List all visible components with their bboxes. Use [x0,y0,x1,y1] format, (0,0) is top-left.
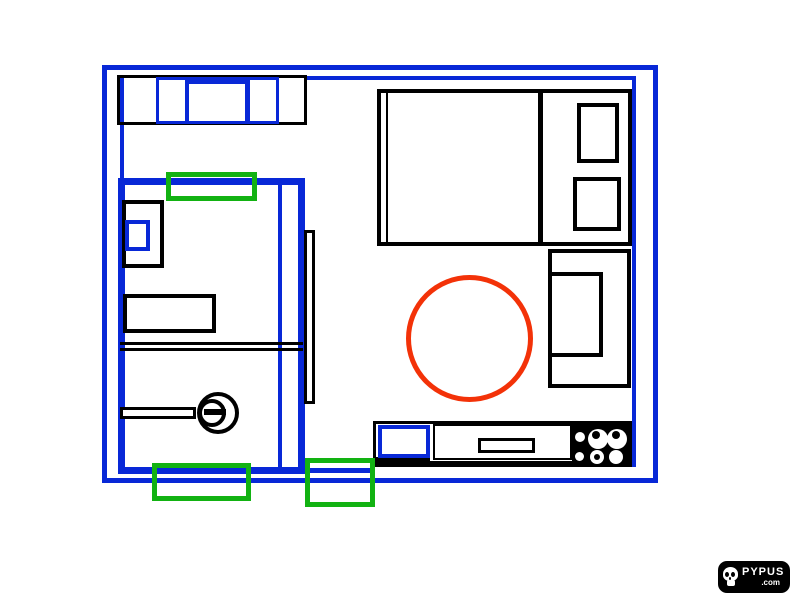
towel-bar[interactable] [120,407,196,419]
door-leaf[interactable] [304,230,315,404]
logo-brand-text: PYPUS [742,567,786,578]
bed-edge-line[interactable] [386,93,388,243]
skull-icon [723,565,739,589]
burner-large-right [607,429,627,449]
burner-large-right-center [612,431,620,439]
stove-burners[interactable] [572,424,630,465]
burner-small-bottom [575,452,584,461]
drawer-handle[interactable] [478,438,535,453]
sofa-cushion-frame[interactable] [156,77,279,124]
green-highlight-rect-bottom-left[interactable] [152,463,251,501]
drain-handle-bar[interactable] [204,409,226,415]
bed-pillow-bottom[interactable] [573,177,621,231]
washing-machine-door[interactable] [125,220,150,251]
coloring-page-canvas: PYPUS .com [0,0,800,600]
burner-small-top [575,432,585,442]
burner-mid-bottom [609,450,623,464]
shelf-double-line[interactable] [120,342,303,351]
kitchen-sink[interactable] [378,425,430,458]
green-highlight-rect-top[interactable] [166,172,257,201]
sofa-cushion-divider-right[interactable] [245,77,250,124]
round-rug[interactable] [406,275,533,402]
burner-large-left-center [592,431,600,439]
green-highlight-rect-bottom-center[interactable] [305,458,375,507]
armchair-seat[interactable] [548,272,603,357]
bathroom-divider-line[interactable] [278,181,282,471]
bathroom-sink[interactable] [123,294,216,333]
logo-tld-text: .com [761,579,780,587]
bed-pillow-top[interactable] [577,103,619,163]
sofa[interactable] [117,75,307,125]
pypus-logo: PYPUS .com [718,561,790,593]
burner-large-left [588,429,608,449]
burner-ring-bottom-center [594,454,600,460]
sofa-cushion-divider-left[interactable] [185,77,189,124]
burner-ring-bottom [590,450,604,464]
sofa-back-bar[interactable] [185,77,250,84]
bed-headboard-divider[interactable] [538,90,543,245]
